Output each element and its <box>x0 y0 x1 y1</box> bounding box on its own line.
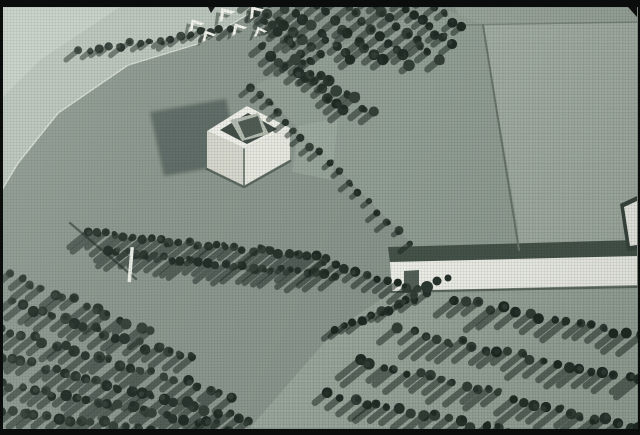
wall-front-tree-1 <box>421 281 433 293</box>
pale-ground-patch <box>292 118 338 180</box>
wall-front-tree-4 <box>445 275 452 282</box>
wall-front-tree-3 <box>410 291 418 299</box>
architectural-model-photo <box>0 0 640 435</box>
wall-front-tree-2 <box>433 277 442 286</box>
model-scene <box>0 0 640 435</box>
